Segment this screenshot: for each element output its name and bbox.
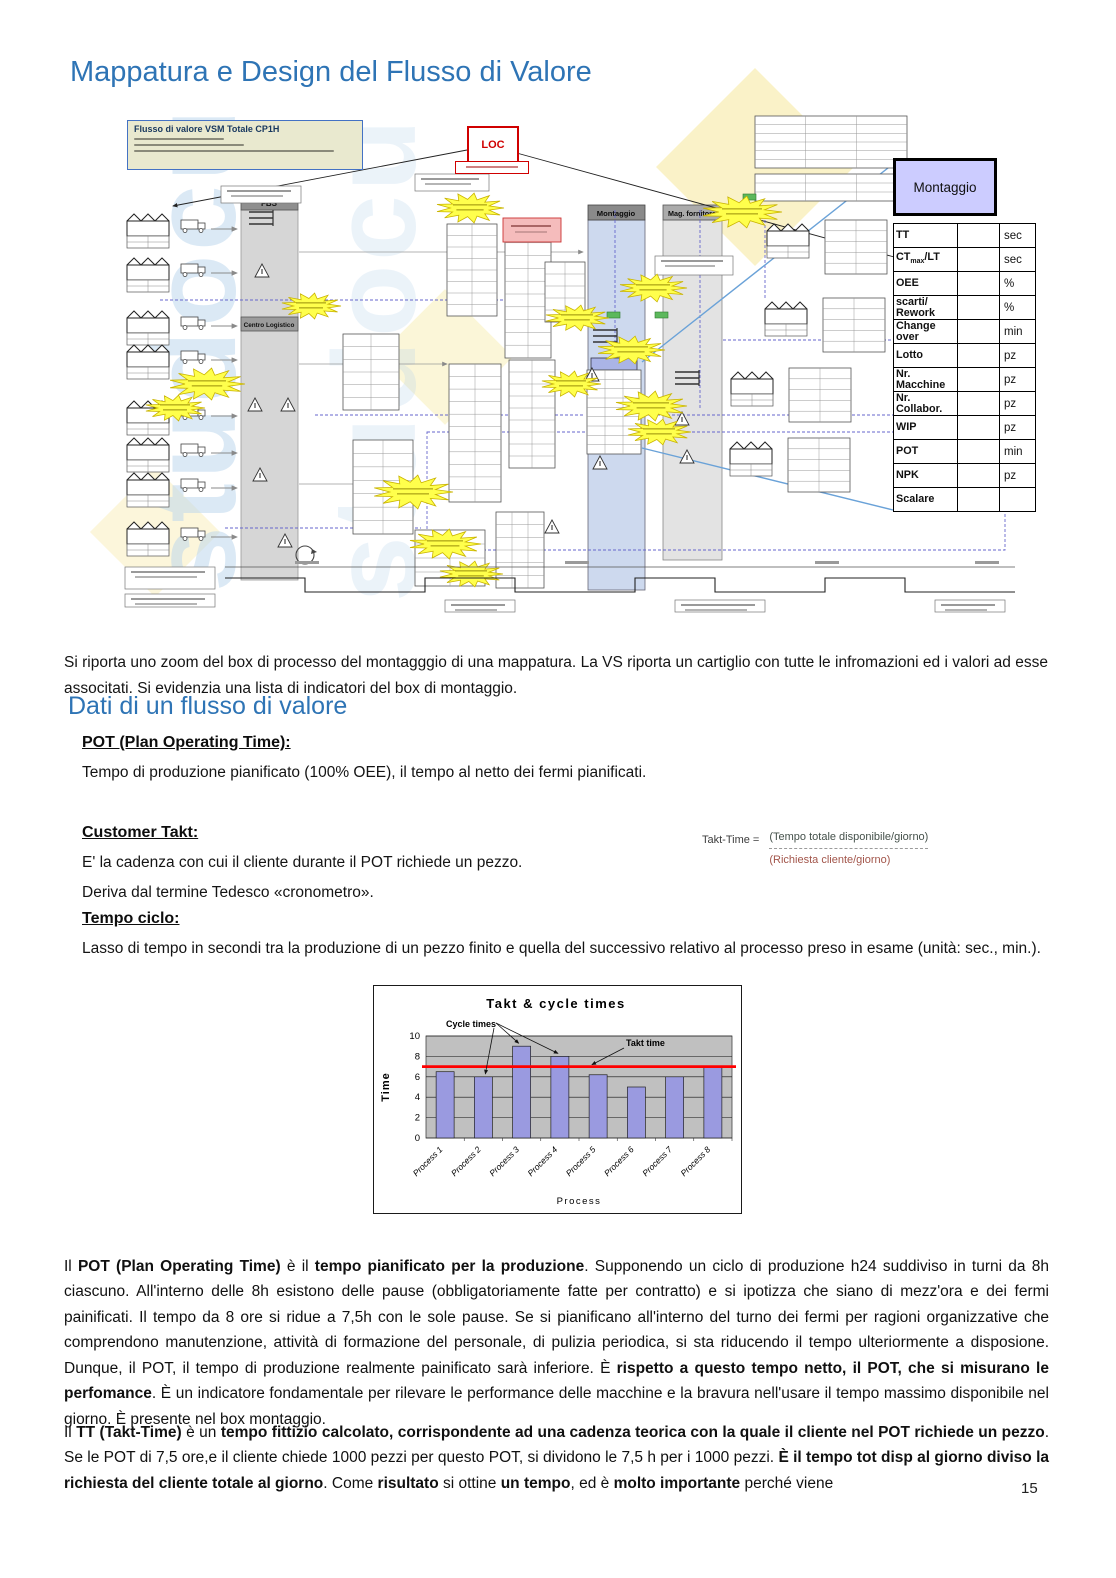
flow-label-box <box>935 600 1005 612</box>
map-subtitle-placeholder <box>134 150 334 152</box>
flow-label-box <box>655 256 733 275</box>
document-page: Mappatura e Design del Flusso di Valore <box>0 0 1116 1578</box>
cartiglio-row-value <box>958 392 1000 416</box>
chart-xtick-label: Process 1 <box>411 1144 445 1178</box>
cartiglio-row-value <box>958 464 1000 488</box>
cartiglio-row-unit: pz <box>1000 392 1036 416</box>
flow-label-box <box>445 600 515 612</box>
vsm-diagram: studocu studocu FBS Centro Logistico Mon… <box>115 112 1035 622</box>
cartiglio-row-value <box>958 296 1000 320</box>
centro-logistico-label: Centro Logistico <box>244 322 295 329</box>
cartiglio-title: Montaggio <box>893 158 997 216</box>
chart-xtick-label: Process 3 <box>487 1144 521 1178</box>
factory-icon <box>127 311 169 345</box>
cartiglio-row: Lottopz <box>894 344 1036 368</box>
cartiglio-row-unit: pz <box>1000 464 1036 488</box>
map-subtitle-placeholder <box>134 144 244 146</box>
cartiglio-row-label: WIP <box>894 416 958 440</box>
loc-box: LOC <box>467 126 519 163</box>
timeline-tick <box>975 561 999 564</box>
process-data-table <box>509 360 555 468</box>
chart-xtick-label: Process 5 <box>564 1144 598 1178</box>
flow-label-box <box>415 174 489 191</box>
cartiglio-row-label: CTmax/LT <box>894 248 958 272</box>
cartiglio-row-unit: pz <box>1000 368 1036 392</box>
chart-bar <box>666 1077 684 1138</box>
factory-icon <box>127 473 169 507</box>
chart-bar <box>474 1077 492 1138</box>
factory-icon <box>730 442 772 476</box>
cartiglio-row-unit: pz <box>1000 416 1036 440</box>
chart-bar <box>551 1056 569 1138</box>
cartiglio-row: POTmin <box>894 440 1036 464</box>
map-subtitle-placeholder <box>134 138 224 140</box>
cartiglio-row: WIPpz <box>894 416 1036 440</box>
takt-time-formula: Takt-Time = (Tempo totale disponibile/gi… <box>702 831 928 866</box>
cartiglio-row: TTsec <box>894 224 1036 248</box>
mag-fornitore-column-label: Mag. fornitore <box>668 209 716 218</box>
process-data-table <box>788 438 850 492</box>
timeline-tick <box>815 561 839 564</box>
factory-icon <box>127 345 169 379</box>
cartiglio-row-unit: % <box>1000 296 1036 320</box>
cartiglio-row-label: Scalare <box>894 488 958 512</box>
cartiglio-row-value <box>958 368 1000 392</box>
process-data-table <box>449 364 501 502</box>
cartiglio-row: OEE% <box>894 272 1036 296</box>
section-heading: Dati di un flusso di valore <box>68 692 347 721</box>
chart-ytick-label: 6 <box>415 1072 420 1083</box>
planning-data-table <box>755 174 907 201</box>
cartiglio-row: Change overmin <box>894 320 1036 344</box>
chart-xtick-label: Process 4 <box>525 1144 559 1178</box>
chart-xlabel: Process <box>557 1196 602 1207</box>
factory-icon <box>127 522 169 556</box>
chart-bar <box>513 1046 531 1138</box>
cartiglio-row-label: POT <box>894 440 958 464</box>
process-data-table <box>789 368 851 422</box>
customer-takt-line2: Deriva dal termine Tedesco «cronometro». <box>82 880 722 906</box>
factory-icon <box>765 302 807 336</box>
process-data-table <box>447 224 497 316</box>
kanban-card-icon <box>655 312 668 318</box>
pot-paragraph: Il POT (Plan Operating Time) è il tempo … <box>64 1254 1049 1433</box>
chart-plot-area <box>426 1036 732 1138</box>
cartiglio-row: Nr. Macchinepz <box>894 368 1036 392</box>
chart-ylabel: Time <box>380 1072 392 1101</box>
cartiglio-row-label: OEE <box>894 272 958 296</box>
flow-label-box <box>675 600 765 612</box>
process-data-table <box>496 512 544 588</box>
cartiglio-row: Scalare <box>894 488 1036 512</box>
cartiglio-row-value <box>958 488 1000 512</box>
page-title: Mappatura e Design del Flusso di Valore <box>70 56 592 89</box>
takt-cycle-times-chart: Takt & cycle times0246810Process 1Proces… <box>373 985 742 1214</box>
cartiglio-row-label: TT <box>894 224 958 248</box>
customer-takt-heading: Customer Takt: <box>82 824 198 842</box>
chart-ytick-label: 4 <box>415 1092 420 1103</box>
cartiglio-row: scarti/ Rework% <box>894 296 1036 320</box>
chart-bar <box>436 1072 454 1138</box>
fifo-shelves-icon <box>593 328 617 344</box>
flow-label-box <box>125 567 215 589</box>
chart-xtick-label: Process 8 <box>678 1144 712 1178</box>
cartiglio-row-label: scarti/ Rework <box>894 296 958 320</box>
cartiglio-row-value <box>958 440 1000 464</box>
chart-ytick-label: 10 <box>409 1031 420 1042</box>
process-data-table <box>825 220 887 274</box>
timeline-tick <box>565 561 589 564</box>
formula-divider <box>769 848 928 849</box>
chart-canvas: Takt & cycle times0246810Process 1Proces… <box>374 986 738 1210</box>
chart-annotation-cycle-times: Cycle times <box>446 1019 496 1029</box>
process-data-table <box>505 230 551 358</box>
process-box-pink <box>503 218 561 242</box>
fifo-shelves-icon <box>675 370 699 386</box>
process-data-table <box>343 334 399 410</box>
cartiglio-row-unit: pz <box>1000 344 1036 368</box>
kaizen-burst-icon <box>437 193 504 223</box>
tempo-ciclo-heading: Tempo ciclo: <box>82 910 180 928</box>
chart-ytick-label: 2 <box>415 1113 420 1124</box>
flow-label-box <box>125 594 215 607</box>
cartiglio-row-unit: min <box>1000 440 1036 464</box>
loc-sub-box <box>455 161 529 174</box>
montaggio-column-label: Montaggio <box>597 209 636 218</box>
formula-numerator: (Tempo totale disponibile/giorno) <box>769 831 928 846</box>
chart-xtick-label: Process 2 <box>449 1144 483 1178</box>
factory-icon <box>127 214 169 248</box>
flow-label-box <box>221 186 301 203</box>
kanban-card-icon <box>607 312 620 318</box>
map-title: Flusso di valore VSM Totale CP1H <box>134 124 356 134</box>
cartiglio-row-label: NPK <box>894 464 958 488</box>
cartiglio-row-label: Change over <box>894 320 958 344</box>
chart-title: Takt & cycle times <box>486 996 625 1011</box>
cartiglio-row-value <box>958 344 1000 368</box>
tempo-ciclo-body: Lasso di tempo in secondi tra la produzi… <box>82 936 1052 962</box>
cartiglio-row-label: Nr. Macchine <box>894 368 958 392</box>
cartiglio-row-value <box>958 224 1000 248</box>
inventory-triangle-icon <box>545 520 559 533</box>
fifo-shelves-icon <box>249 210 273 226</box>
chart-bar <box>704 1067 722 1138</box>
chart-xtick-label: Process 6 <box>602 1144 636 1178</box>
cartiglio-row-unit: sec <box>1000 248 1036 272</box>
cartiglio-row-label: Lotto <box>894 344 958 368</box>
cartiglio-row: NPKpz <box>894 464 1036 488</box>
factory-icon <box>127 258 169 292</box>
cartiglio-row: CTmax/LTsec <box>894 248 1036 272</box>
cartiglio-row-label: Nr. Collabor. <box>894 392 958 416</box>
cartiglio-row-value <box>958 416 1000 440</box>
formula-lhs: Takt-Time = <box>702 831 759 846</box>
process-data-table <box>823 298 885 352</box>
chart-annotation-takt-time: Takt time <box>626 1038 665 1048</box>
planning-data-table <box>755 116 907 168</box>
factory-icon <box>731 372 773 406</box>
pot-body: Tempo di produzione pianificato (100% OE… <box>82 760 982 786</box>
chart-ytick-label: 0 <box>415 1133 420 1144</box>
cartiglio-row-unit: sec <box>1000 224 1036 248</box>
chart-xtick-label: Process 7 <box>640 1144 674 1178</box>
tt-paragraph: Il TT (Takt-Time) è un tempo fittizio ca… <box>64 1420 1049 1497</box>
cartiglio-row-value <box>958 272 1000 296</box>
cartiglio-row-unit: % <box>1000 272 1036 296</box>
timeline-tick <box>295 561 319 564</box>
cartiglio-indicator-table: TTsecCTmax/LTsecOEE%scarti/ Rework%Chang… <box>893 223 1036 512</box>
cartiglio-row-value <box>958 320 1000 344</box>
cartiglio-row-unit: min <box>1000 320 1036 344</box>
customer-takt-line1: E' la cadenza con cui il cliente durante… <box>82 850 722 876</box>
loc-label: LOC <box>481 139 504 151</box>
formula-denominator: (Richiesta cliente/giorno) <box>769 854 928 866</box>
pot-heading: POT (Plan Operating Time): <box>82 734 291 752</box>
chart-bar <box>627 1087 645 1138</box>
montaggio-cartiglio-table: Montaggio TTsecCTmax/LTsecOEE%scarti/ Re… <box>893 158 1035 512</box>
cartiglio-row-value <box>958 248 1000 272</box>
cartiglio-row: Nr. Collabor.pz <box>894 392 1036 416</box>
factory-icon <box>767 224 809 258</box>
page-number: 15 <box>1021 1480 1038 1497</box>
chart-bar <box>589 1075 607 1138</box>
factory-icon <box>127 438 169 472</box>
chart-ytick-label: 8 <box>415 1051 420 1062</box>
cartiglio-row-unit <box>1000 488 1036 512</box>
map-title-box: Flusso di valore VSM Totale CP1H <box>127 120 363 170</box>
